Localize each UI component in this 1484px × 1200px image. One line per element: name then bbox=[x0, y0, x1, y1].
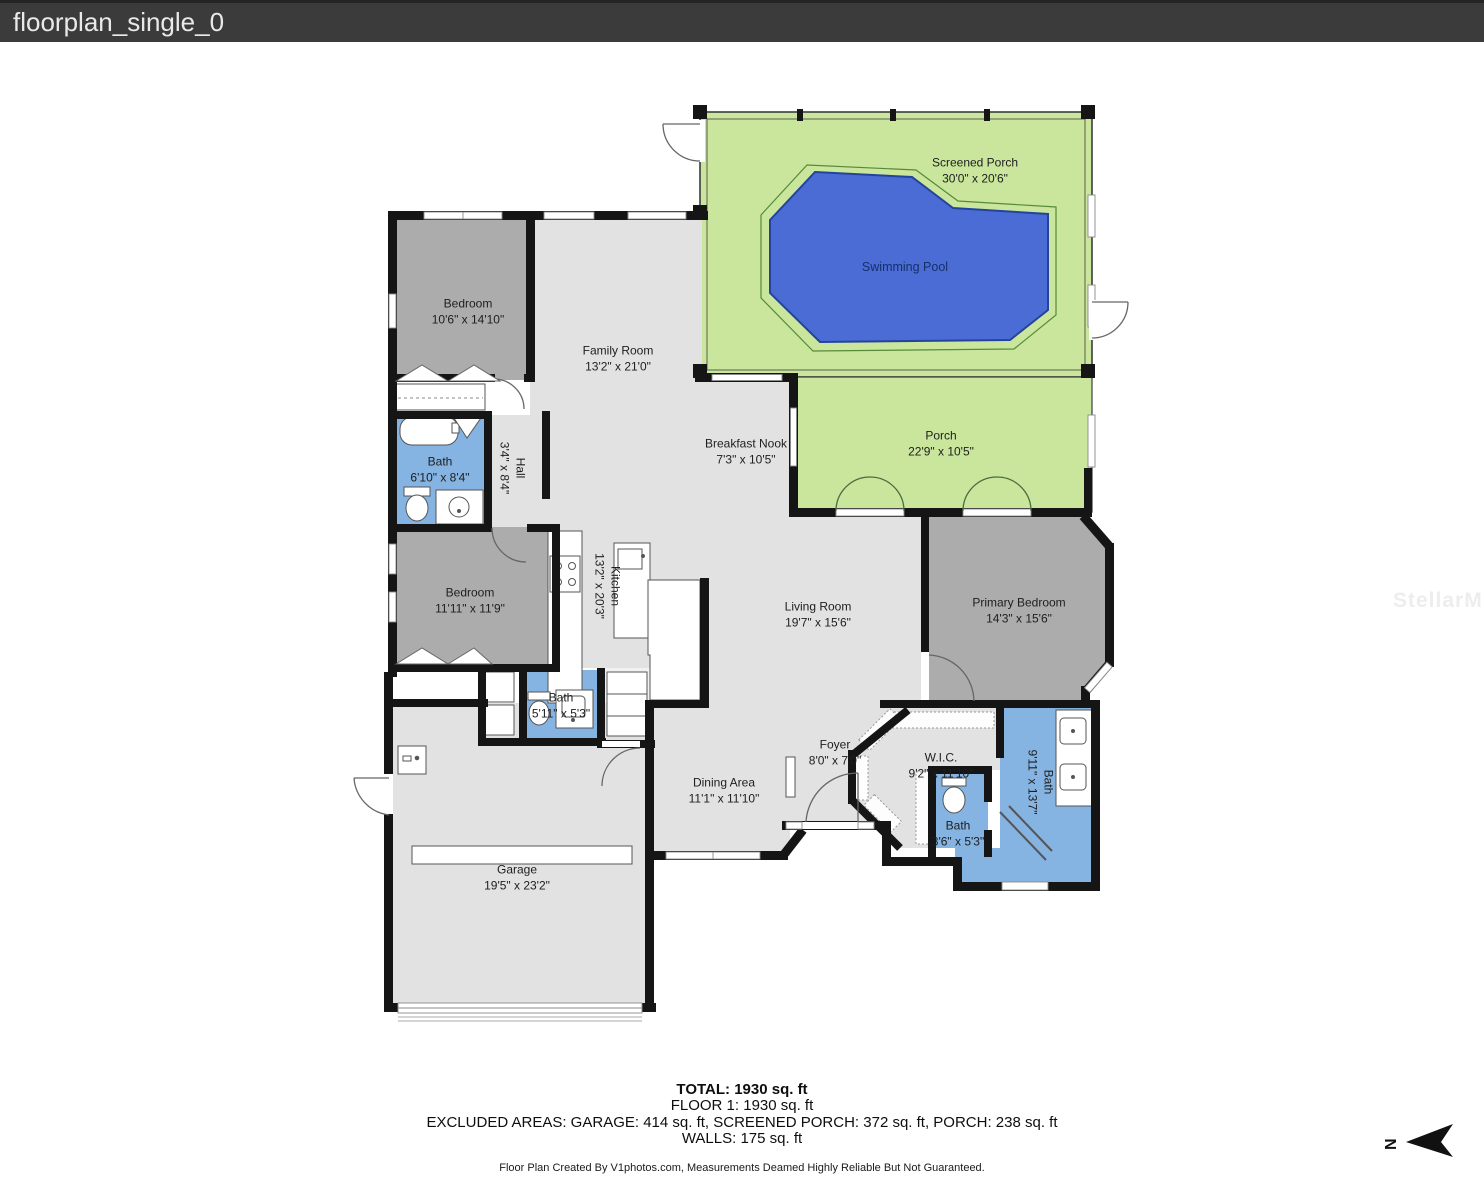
summary-floor1: FLOOR 1: 1930 sq. ft bbox=[0, 1098, 1484, 1115]
room-label-bath-2: Bath 5'11" x 5'3" bbox=[532, 690, 590, 721]
floor-plan-graphic: N bbox=[0, 0, 1484, 1200]
credit-note: Floor Plan Created By V1photos.com, Meas… bbox=[0, 1162, 1484, 1174]
stellar-mls-watermark: StellarMLS bbox=[1393, 589, 1484, 613]
room-label-screened-porch: Screened Porch 30'0" x 20'6" bbox=[932, 155, 1018, 186]
summary-walls: WALLS: 175 sq. ft bbox=[0, 1131, 1484, 1148]
room-label-hall: Hall 3'4" x 8'4" bbox=[496, 442, 527, 494]
room-label-dining-area: Dining Area 11'1" x 11'10" bbox=[689, 775, 760, 806]
room-label-wic: W.I.C. 9'2" x 11'10" bbox=[909, 750, 974, 781]
summary-excluded: EXCLUDED AREAS: GARAGE: 414 sq. ft, SCRE… bbox=[0, 1115, 1484, 1132]
room-label-primary-bedroom: Primary Bedroom 14'3" x 15'6" bbox=[972, 595, 1065, 626]
room-label-swimming-pool: Swimming Pool bbox=[862, 259, 948, 275]
room-label-bedroom-mid: Bedroom 11'11" x 11'9" bbox=[435, 585, 505, 616]
room-label-porch: Porch 22'9" x 10'5" bbox=[908, 428, 974, 459]
room-label-kitchen: Kitchen 13'2" x 20'3" bbox=[591, 553, 622, 619]
summary-total: TOTAL: 1930 sq. ft bbox=[0, 1081, 1484, 1098]
screenshot-root: floorplan_single_0 bbox=[0, 0, 1484, 1200]
room-label-family-room: Family Room 13'2" x 21'0" bbox=[583, 343, 654, 374]
room-label-breakfast-nook: Breakfast Nook 7'3" x 10'5" bbox=[705, 436, 787, 467]
room-label-bath-primary: Bath 9'11" x 13'7" bbox=[1024, 750, 1055, 815]
room-label-bedroom-top: Bedroom 10'6" x 14'10" bbox=[432, 296, 505, 327]
room-label-garage: Garage 19'5" x 23'2" bbox=[484, 862, 550, 893]
room-label-foyer: Foyer 8'0" x 7'0" bbox=[809, 737, 861, 768]
area-summary: TOTAL: 1930 sq. ft FLOOR 1: 1930 sq. ft … bbox=[0, 1081, 1484, 1148]
room-label-bath-small: Bath 3'6" x 5'3" bbox=[932, 818, 984, 849]
room-label-bath-1: Bath 6'10" x 8'4" bbox=[410, 454, 469, 485]
room-label-living-room: Living Room 19'7" x 15'6" bbox=[785, 599, 852, 630]
